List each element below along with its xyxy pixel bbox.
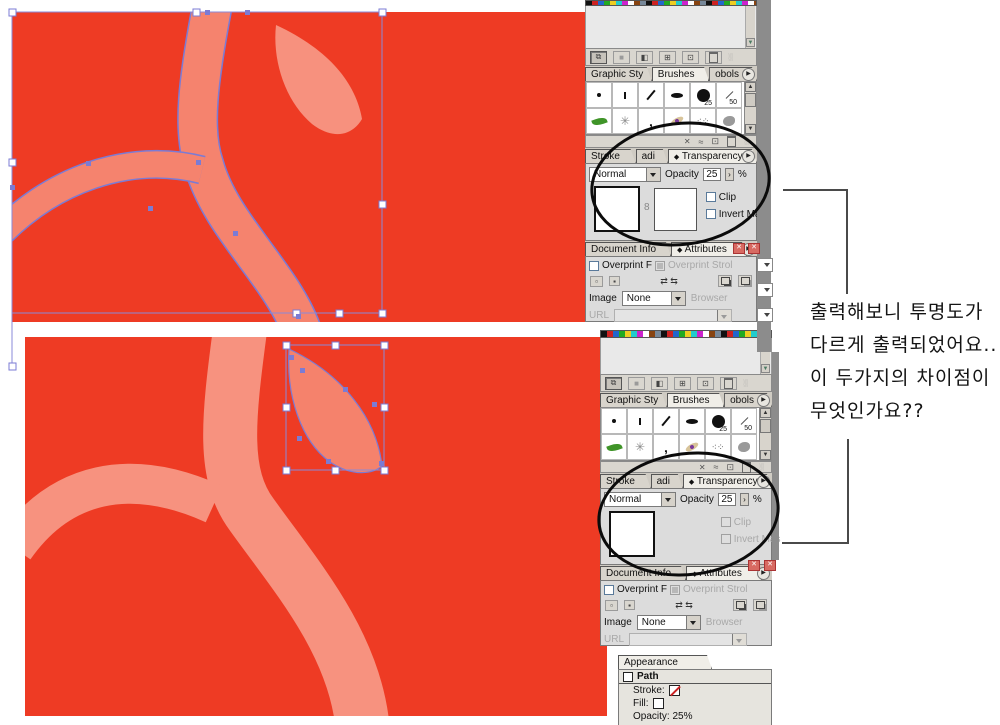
close-button-fragment[interactable]: ✕ bbox=[733, 243, 745, 254]
close-button-fragment[interactable]: ✕ bbox=[764, 560, 776, 571]
bracket-line bbox=[847, 439, 849, 544]
reverse-path-buttons[interactable]: ⇄ ⇆ bbox=[626, 276, 712, 287]
composited-screenshot: ▼ ⧉ ■ ◧ ⊞ ⊡ ░ Graphic Sty Brushes obols … bbox=[0, 0, 1000, 725]
browser-button: Browser bbox=[691, 293, 728, 304]
handwritten-question: 출력해보니 투명도가 다르게 출력되었어요.. 이 두가지의 차이점이 무엇인가… bbox=[810, 296, 1000, 428]
attributes-panel-1: Overprint F Overprint Strol ▫ ▪ ⇄ ⇆ Imag… bbox=[585, 256, 757, 322]
bracket-line bbox=[846, 189, 848, 294]
new-item-button[interactable]: ⊡ bbox=[697, 377, 714, 390]
appearance-opacity-row[interactable]: Opacity: 25% bbox=[619, 710, 771, 723]
annotation-line: 이 두가지의 차이점이 bbox=[810, 362, 1000, 395]
brush-star[interactable]: ✳ bbox=[627, 434, 653, 460]
hide-center-button[interactable]: ▪ bbox=[624, 600, 635, 610]
scroll-up-icon[interactable]: ▲ bbox=[760, 408, 771, 418]
fill-rule-evenodd-button[interactable] bbox=[753, 599, 767, 611]
swatches-strip[interactable] bbox=[600, 330, 772, 338]
close-button-fragment[interactable]: ✕ bbox=[748, 243, 760, 254]
bracket-line bbox=[783, 189, 848, 191]
styles-palette-buttons: ⧉ ■ ◧ ⊞ ⊡ ░ bbox=[585, 48, 757, 66]
brushes-scrollbar[interactable]: ▲ ▼ bbox=[744, 82, 756, 134]
fill-rule-nonzero-button[interactable] bbox=[718, 275, 732, 287]
chevron-down-icon[interactable] bbox=[671, 292, 685, 305]
scroll-up-icon[interactable]: ▲ bbox=[745, 82, 756, 92]
tab-graphic-styles[interactable]: Graphic Sty bbox=[585, 67, 652, 81]
annotation-line: 무엇인가요?? bbox=[810, 395, 1000, 428]
appearance-path-row[interactable]: Path bbox=[619, 670, 771, 684]
chevron-down-icon[interactable] bbox=[686, 616, 700, 629]
opacity-text: Opacity: 25% bbox=[633, 711, 692, 722]
fill-rule-nonzero-button[interactable] bbox=[733, 599, 747, 611]
brush-star[interactable]: ✳ bbox=[612, 108, 638, 134]
image-label: Image bbox=[604, 617, 632, 628]
path-thumbnail bbox=[623, 672, 633, 682]
appearance-fill-row[interactable]: Fill: bbox=[619, 697, 771, 710]
solid-style-button[interactable]: ■ bbox=[628, 377, 645, 390]
leaf-brush-icon bbox=[606, 441, 622, 453]
path-label: Path bbox=[637, 671, 659, 682]
chevron-down-icon bbox=[717, 310, 731, 321]
browser-button: Browser bbox=[706, 617, 743, 628]
tab-appearance[interactable]: Appearance bbox=[618, 655, 712, 669]
layers-button[interactable]: ⧉ bbox=[605, 377, 622, 390]
brush-splatter[interactable] bbox=[731, 434, 757, 460]
combo-fragment[interactable] bbox=[757, 258, 773, 272]
brush-25pt[interactable]: 25 bbox=[690, 82, 716, 108]
scroll-thumb[interactable] bbox=[760, 419, 771, 433]
scroll-down-icon[interactable]: ▼ bbox=[761, 364, 770, 373]
grid-view-button[interactable]: ⊞ bbox=[659, 51, 676, 64]
image-map-select[interactable]: None bbox=[622, 291, 686, 306]
overprint-fill-checkbox[interactable] bbox=[589, 261, 599, 271]
palette-menu-icon[interactable]: ▶ bbox=[742, 68, 755, 81]
styles-tab-row: Graphic Sty Brushes obols ▶ bbox=[600, 392, 772, 407]
resize-grip[interactable]: ░ bbox=[728, 54, 734, 61]
solid-style-button[interactable]: ■ bbox=[613, 51, 630, 64]
attributes-panel-2: Overprint F Overprint Strol ▫ ▪ ⇄ ⇆ Imag… bbox=[600, 580, 772, 646]
reverse-path-buttons[interactable]: ⇄ ⇆ bbox=[641, 600, 727, 611]
brush-diagonal[interactable] bbox=[653, 408, 679, 434]
resize-grip[interactable]: ░ bbox=[759, 464, 765, 471]
annotation-line: 다르게 출력되었어요.. bbox=[810, 329, 1000, 362]
scroll-down-icon[interactable]: ▼ bbox=[760, 450, 771, 460]
combo-fragment[interactable] bbox=[757, 283, 773, 297]
gradient-style-button[interactable]: ◧ bbox=[651, 377, 668, 390]
overprint-fill-label: Overprint F bbox=[617, 584, 667, 595]
brushes-scrollbar[interactable]: ▲ ▼ bbox=[759, 408, 771, 460]
appearance-stroke-row[interactable]: Stroke: bbox=[619, 684, 771, 697]
palette-menu-icon[interactable]: ▶ bbox=[757, 394, 770, 407]
url-select bbox=[629, 633, 747, 646]
brush-leaf[interactable] bbox=[601, 434, 627, 460]
brush-diagonal[interactable] bbox=[638, 82, 664, 108]
tab-brushes[interactable]: Brushes bbox=[652, 67, 709, 81]
overprint-stroke-checkbox bbox=[655, 261, 665, 271]
scroll-down-icon[interactable]: ▼ bbox=[745, 124, 756, 134]
brush-leaf[interactable] bbox=[586, 108, 612, 134]
overprint-stroke-checkbox bbox=[670, 585, 680, 595]
overprint-fill-label: Overprint F bbox=[602, 260, 652, 271]
overprint-stroke-label: Overprint Strol bbox=[668, 260, 732, 271]
image-label: Image bbox=[589, 293, 617, 304]
styles-list-area[interactable]: ▼ bbox=[585, 6, 757, 48]
scroll-thumb[interactable] bbox=[745, 93, 756, 107]
layers-button[interactable]: ⧉ bbox=[590, 51, 607, 64]
gradient-style-button[interactable]: ◧ bbox=[636, 51, 653, 64]
url-label: URL bbox=[589, 310, 609, 321]
styles-tab-row: Graphic Sty Brushes obols ▶ bbox=[585, 66, 757, 81]
fill-white-swatch bbox=[653, 698, 664, 709]
overprint-stroke-label: Overprint Strol bbox=[683, 584, 747, 595]
styles-list-area[interactable]: ▼ bbox=[600, 338, 772, 374]
brush-50pt[interactable]: 50 bbox=[731, 408, 757, 434]
url-select bbox=[614, 309, 732, 322]
new-item-button[interactable]: ⊡ bbox=[682, 51, 699, 64]
brush-dash[interactable] bbox=[612, 82, 638, 108]
trash-button[interactable] bbox=[720, 377, 737, 390]
stroke-none-swatch bbox=[669, 685, 680, 696]
trash-button[interactable] bbox=[705, 51, 722, 64]
url-label: URL bbox=[604, 634, 624, 645]
styles-palette-buttons: ⧉ ■ ◧ ⊞ ⊡ ░ bbox=[600, 374, 772, 392]
tab-brushes[interactable]: Brushes bbox=[667, 393, 724, 407]
brush-dash[interactable] bbox=[627, 408, 653, 434]
show-center-button[interactable]: ▫ bbox=[590, 276, 603, 287]
brush-ellipse[interactable] bbox=[679, 408, 705, 434]
fill-rule-evenodd-button[interactable] bbox=[738, 275, 752, 287]
show-center-button[interactable]: ▫ bbox=[605, 600, 618, 611]
fill-label: Fill: bbox=[633, 698, 649, 709]
image-map-select[interactable]: None bbox=[637, 615, 701, 630]
splatter-brush-icon bbox=[723, 116, 735, 126]
brush-ellipse[interactable] bbox=[664, 82, 690, 108]
bracket-line bbox=[782, 542, 848, 544]
annotation-line: 출력해보니 투명도가 bbox=[810, 296, 1000, 329]
splatter-brush-icon bbox=[738, 442, 750, 452]
brush-50pt[interactable]: 50 bbox=[716, 82, 742, 108]
tab-graphic-styles[interactable]: Graphic Sty bbox=[600, 393, 667, 407]
stroke-label: Stroke: bbox=[633, 685, 665, 696]
chevron-down-icon bbox=[732, 634, 746, 645]
scroll-down-icon[interactable]: ▼ bbox=[746, 38, 755, 47]
brush-25pt[interactable]: 25 bbox=[705, 408, 731, 434]
brush-dot[interactable] bbox=[586, 82, 612, 108]
combo-fragment[interactable] bbox=[757, 308, 773, 322]
grid-view-button[interactable]: ⊞ bbox=[674, 377, 691, 390]
overprint-fill-checkbox[interactable] bbox=[604, 585, 614, 595]
resize-grip[interactable]: ░ bbox=[743, 380, 749, 387]
close-button-fragment[interactable]: ✕ bbox=[748, 560, 760, 571]
trash-icon bbox=[724, 378, 733, 389]
brush-dot[interactable] bbox=[601, 408, 627, 434]
appearance-panel: Appearance Path Stroke: Fill: Opacity: 2… bbox=[618, 654, 772, 725]
hide-center-button[interactable]: ▪ bbox=[609, 276, 620, 286]
trash-icon bbox=[709, 52, 718, 63]
leaf-brush-icon bbox=[591, 115, 607, 127]
